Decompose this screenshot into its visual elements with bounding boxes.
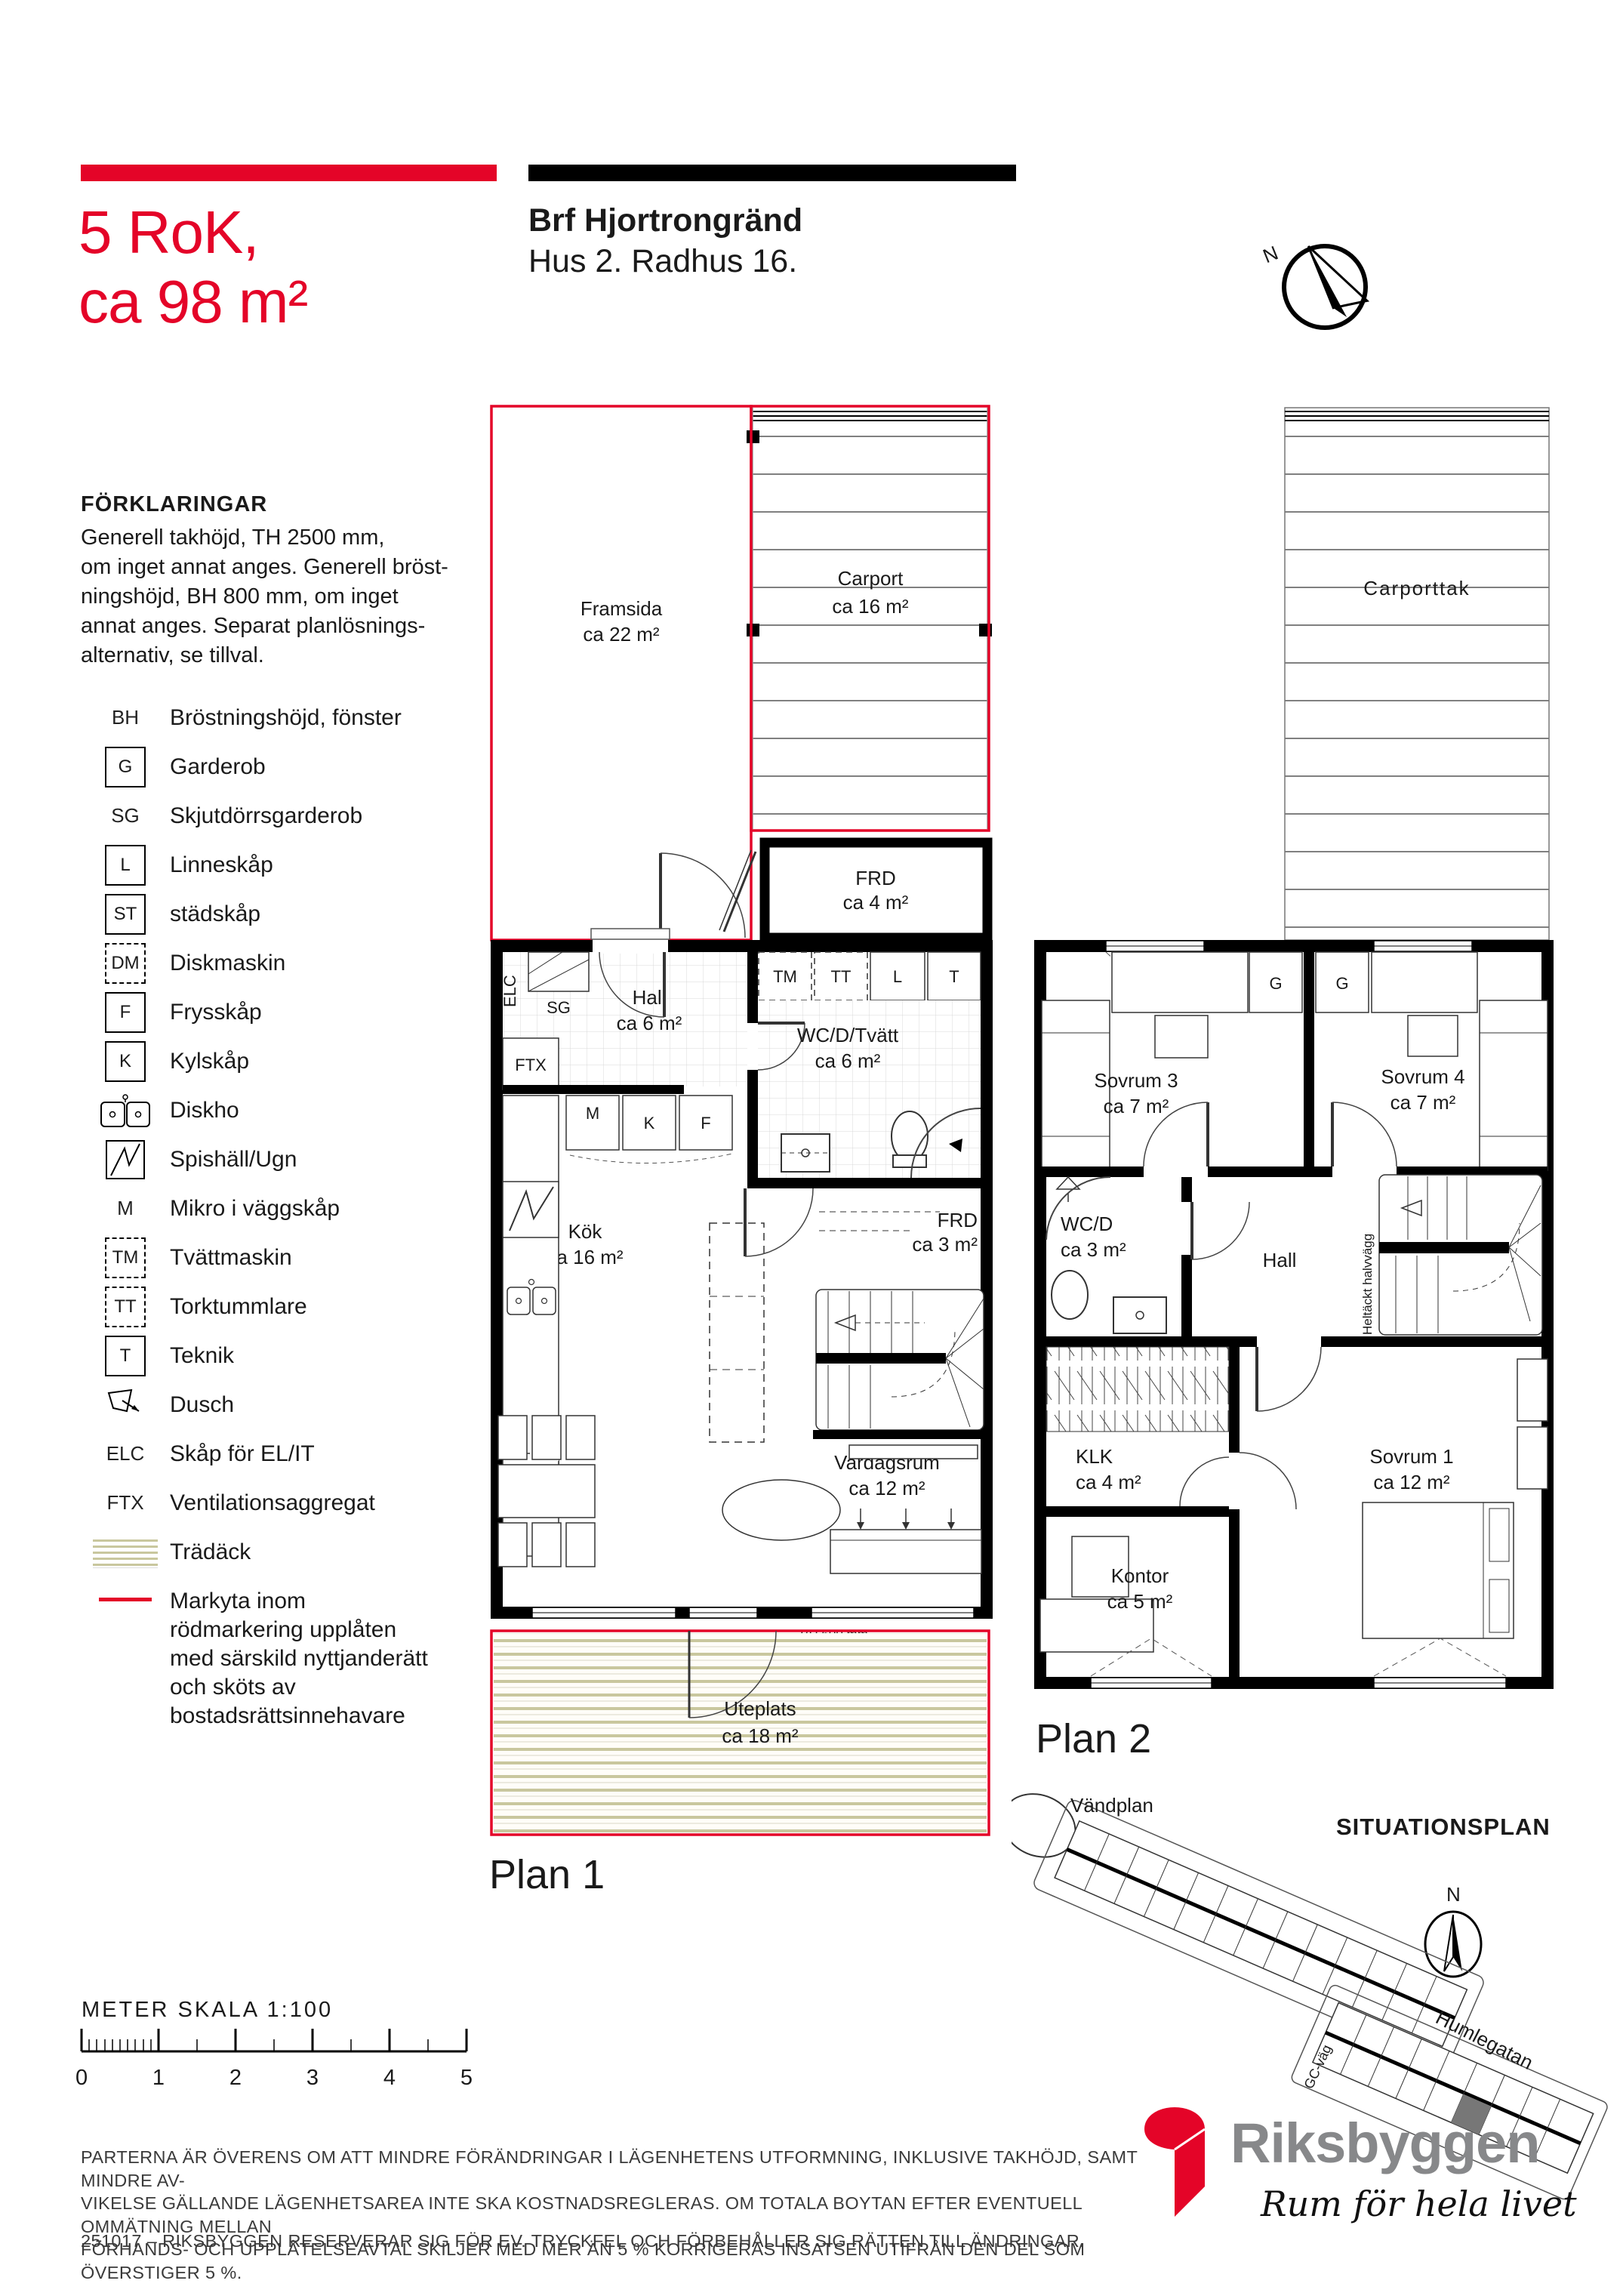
- ftx-symbol: FTX: [81, 1491, 170, 1515]
- legend-desc-line: annat anges. Separat planlösnings-: [81, 612, 507, 641]
- hall-kitchen-wall: [503, 1085, 684, 1094]
- stove-icon: [105, 1139, 146, 1180]
- sg-wardrobe: [528, 952, 589, 991]
- wcd-area: ca 3 m²: [1061, 1238, 1126, 1261]
- desk3: [1112, 952, 1248, 1012]
- ftx-tag: FTX: [515, 1056, 547, 1074]
- plan1-windows: [532, 1607, 974, 1618]
- sg-tag: SG: [547, 998, 571, 1017]
- legend-item-tradack: Trädäck: [81, 1527, 507, 1576]
- tm-tag: TM: [773, 967, 797, 986]
- room-uteplats: Uteplats ca 18 m²: [491, 1631, 989, 1835]
- stairs1: [813, 1290, 987, 1439]
- deck-icon: [93, 1536, 158, 1568]
- sink-icon: [99, 1093, 152, 1128]
- bed4: [1480, 1000, 1548, 1170]
- klk-label: KLK: [1076, 1445, 1113, 1468]
- pillow1b: [1489, 1579, 1509, 1632]
- halvvagg-label: Heltäckt halvvägg: [1360, 1234, 1375, 1335]
- red-line-icon: [99, 1598, 152, 1601]
- vandplan-label: Vändplan: [1070, 1794, 1153, 1817]
- legend-item-teknik: T Teknik: [81, 1331, 507, 1380]
- bedroom-divider-wall: [1304, 946, 1314, 1173]
- legend-desc-line: Generell takhöjd, TH 2500 mm,: [81, 523, 507, 553]
- carporttak: Carporttak: [1285, 408, 1549, 940]
- wcd-label: WC/D: [1061, 1213, 1113, 1235]
- legend-item-linneskap: L Linneskåp: [81, 840, 507, 889]
- size-line-2: ca 98 m²: [79, 267, 307, 337]
- wardrobe-symbol: G: [105, 747, 146, 787]
- scale-tick-4: 4: [383, 2066, 396, 2090]
- kok-label: Kök: [568, 1220, 603, 1243]
- legend-item-frysskap: F Frysskåp: [81, 988, 507, 1037]
- framsida-area: ca 22 m²: [583, 623, 659, 646]
- legend-item-mikro: M Mikro i väggskåp: [81, 1184, 507, 1233]
- room-carport: Carport ca 16 m²: [747, 406, 992, 831]
- legend-item-stadskap: ST städskåp: [81, 889, 507, 938]
- linen-symbol: L: [105, 845, 146, 886]
- room-hall1: Hall ca 6 m² SG ELC FTX: [500, 929, 747, 1094]
- unit-name: Hus 2. Radhus 16.: [528, 243, 797, 280]
- legend-item-ftx: FTX Ventilationsaggregat: [81, 1478, 507, 1527]
- sink1: [781, 1134, 830, 1172]
- sovrum3-area: ca 7 m²: [1104, 1095, 1169, 1117]
- g1-tag: G: [1269, 974, 1282, 993]
- carport-area: ca 16 m²: [832, 595, 908, 618]
- legend: FÖRKLARINGAR Generell takhöjd, TH 2500 m…: [81, 492, 507, 1730]
- legend-desc-line: om inget annat anges. Generell bröst-: [81, 553, 507, 582]
- stairs2: Heltäckt halvvägg: [1360, 1175, 1542, 1335]
- sovrum4-label: Sovrum 4: [1381, 1065, 1464, 1088]
- t-tag: T: [949, 967, 959, 986]
- kontor-area: ca 5 m²: [1107, 1590, 1173, 1613]
- hall1-label: Hall: [633, 986, 667, 1009]
- compass-n-label: N: [1260, 241, 1282, 267]
- micro-symbol: M: [81, 1197, 170, 1220]
- legend-desc-line: alternativ, se tillval.: [81, 641, 507, 670]
- wc1-label: WC/D/Tvätt: [797, 1024, 899, 1046]
- legend-desc-line: ningshöjd, BH 800 mm, om inget: [81, 582, 507, 612]
- floorplan-sheet: 5 RoK, ca 98 m² Brf Hjortrongränd Hus 2.…: [0, 0, 1623, 2296]
- vardagsrum-area: ca 12 m²: [848, 1477, 925, 1499]
- sovrum4-area: ca 7 m²: [1390, 1091, 1456, 1114]
- project-name: Brf Hjortrongränd: [528, 202, 802, 239]
- sovrum1-area: ca 12 m²: [1373, 1471, 1449, 1493]
- coffee-table: [722, 1480, 840, 1540]
- frd-inner-area: ca 3 m²: [912, 1233, 978, 1256]
- dryer-symbol: TT: [105, 1287, 146, 1327]
- frd-entre-label: FRD: [855, 867, 895, 889]
- legend-item-spishall: Spishäll/Ugn: [81, 1135, 507, 1184]
- legal-line: PARTERNA ÄR ÖVERENS OM ATT MINDRE FÖRÄND…: [81, 2146, 1153, 2192]
- legend-items: BH Bröstningshöjd, fönster G Garderob SG…: [81, 693, 507, 1730]
- tt-tag: TT: [831, 967, 852, 986]
- chair4: [1408, 1015, 1458, 1056]
- shower-icon: [106, 1388, 145, 1422]
- wc1-area: ca 6 m²: [815, 1049, 881, 1072]
- f-tag: F: [701, 1114, 710, 1133]
- sink2: [1113, 1297, 1166, 1333]
- scale-tick-2: 2: [229, 2066, 242, 2090]
- dishwasher-symbol: DM: [105, 943, 146, 984]
- legend-item-bh: BH Bröstningshöjd, fönster: [81, 693, 507, 742]
- legend-description: Generell takhöjd, TH 2500 mm, om inget a…: [81, 523, 507, 670]
- room-framsida: Framsida ca 22 m²: [491, 406, 751, 940]
- scale-tick-1: 1: [152, 2066, 165, 2090]
- site-compass-icon: N: [1425, 1883, 1481, 1977]
- fridge-symbol: K: [105, 1041, 146, 1082]
- scale-tick-3: 3: [306, 2066, 319, 2090]
- framsida-label: Framsida: [581, 597, 663, 620]
- riksbyggen-logo-name: Riksbyggen: [1230, 2111, 1539, 2175]
- tv-bench: [849, 1445, 978, 1459]
- frd-inner-label: FRD: [938, 1209, 978, 1231]
- plan1-title: Plan 1: [489, 1851, 605, 1898]
- sovrum3-label: Sovrum 3: [1094, 1069, 1178, 1092]
- g2-tag: G: [1335, 974, 1348, 993]
- legend-item-torktumlare: TT Torktummlare: [81, 1282, 507, 1331]
- riksbyggen-logo-icon: [1138, 2105, 1211, 2238]
- toilet1: [892, 1111, 928, 1161]
- apartment-size-title: 5 RoK, ca 98 m²: [79, 198, 307, 337]
- uteplats-label: Uteplats: [724, 1697, 796, 1720]
- scale-label: METER SKALA 1:100: [82, 1998, 333, 2022]
- desk4: [1372, 952, 1477, 1012]
- dining-set: [498, 1416, 595, 1567]
- m-tag: M: [586, 1104, 599, 1123]
- legend-item-markyta: Markyta inom rödmarkering upplåten med s…: [81, 1587, 507, 1730]
- legend-title: FÖRKLARINGAR: [81, 492, 507, 517]
- freezer-symbol: F: [105, 992, 146, 1033]
- elc-symbol: ELC: [81, 1442, 170, 1465]
- legend-item-diskho: Diskho: [81, 1086, 507, 1135]
- revision-note: 251017 – RIKSBYGGEN RESERVERAR SIG FÖR E…: [81, 2231, 1153, 2251]
- plan2-title: Plan 2: [1036, 1715, 1151, 1762]
- legend-item-elc: ELC Skåp för EL/IT: [81, 1429, 507, 1478]
- scale-tick-0: 0: [75, 2066, 88, 2090]
- uteplats-area: ca 18 m²: [722, 1724, 798, 1747]
- washer-symbol: TM: [105, 1237, 146, 1278]
- hall2-label: Hall: [1263, 1249, 1297, 1271]
- toilet2: [1052, 1271, 1088, 1319]
- riksbyggen-tagline: Rum för hela livet: [1261, 2184, 1577, 2224]
- legal-paragraph: PARTERNA ÄR ÖVERENS OM ATT MINDRE FÖRÄND…: [81, 2146, 1153, 2284]
- entry-step: [591, 929, 670, 939]
- carport-label: Carport: [838, 567, 904, 590]
- legend-item-garderob: G Garderob: [81, 742, 507, 791]
- site-compass-n: N: [1446, 1883, 1461, 1906]
- bh-symbol: BH: [81, 706, 170, 729]
- wc1-bottom-wall: [747, 1178, 981, 1188]
- scale-bar: METER SKALA 1:100 0 1 2 3 4 5: [75, 1997, 498, 2099]
- chair3: [1155, 1015, 1208, 1058]
- situationsplan-title: SITUATIONSPLAN: [1336, 1814, 1551, 1840]
- tech-symbol: T: [105, 1336, 146, 1376]
- klk-area: ca 4 m²: [1076, 1471, 1141, 1493]
- plan2-floorplan: Carporttak Sovrum 3 ca 7 m² G G: [1030, 400, 1559, 1752]
- plan1-floorplan: Framsida ca 22 m² Carport ca 16 m² FRD c…: [487, 400, 993, 1842]
- legend-item-diskmaskin: DM Diskmaskin: [81, 938, 507, 988]
- k-tag: K: [644, 1114, 655, 1133]
- north-compass-icon: N: [1238, 204, 1397, 347]
- wardrobe1a: [1517, 1359, 1548, 1421]
- sg-symbol: SG: [81, 804, 170, 827]
- kontor-label: Kontor: [1111, 1564, 1169, 1587]
- black-accent-bar: [528, 165, 1016, 181]
- legend-item-tvattmaskin: TM Tvättmaskin: [81, 1233, 507, 1282]
- legend-item-kylskap: K Kylskåp: [81, 1037, 507, 1086]
- frd-entre-area: ca 4 m²: [843, 891, 909, 914]
- l-tag: L: [893, 967, 902, 986]
- scale-tick-5: 5: [460, 2066, 473, 2090]
- pillow1a: [1489, 1509, 1509, 1561]
- legend-item-dusch: Dusch: [81, 1380, 507, 1429]
- legend-item-sg: SG Skjutdörrsgarderob: [81, 791, 507, 840]
- size-line-1: 5 RoK,: [79, 198, 307, 267]
- carporttak-label: Carporttak: [1363, 577, 1470, 599]
- elc-tag: ELC: [500, 975, 519, 1007]
- sovrum1-label: Sovrum 1: [1369, 1445, 1453, 1468]
- red-accent-bar: [81, 165, 497, 181]
- wardrobe1b: [1517, 1427, 1548, 1489]
- cleaning-symbol: ST: [105, 894, 146, 935]
